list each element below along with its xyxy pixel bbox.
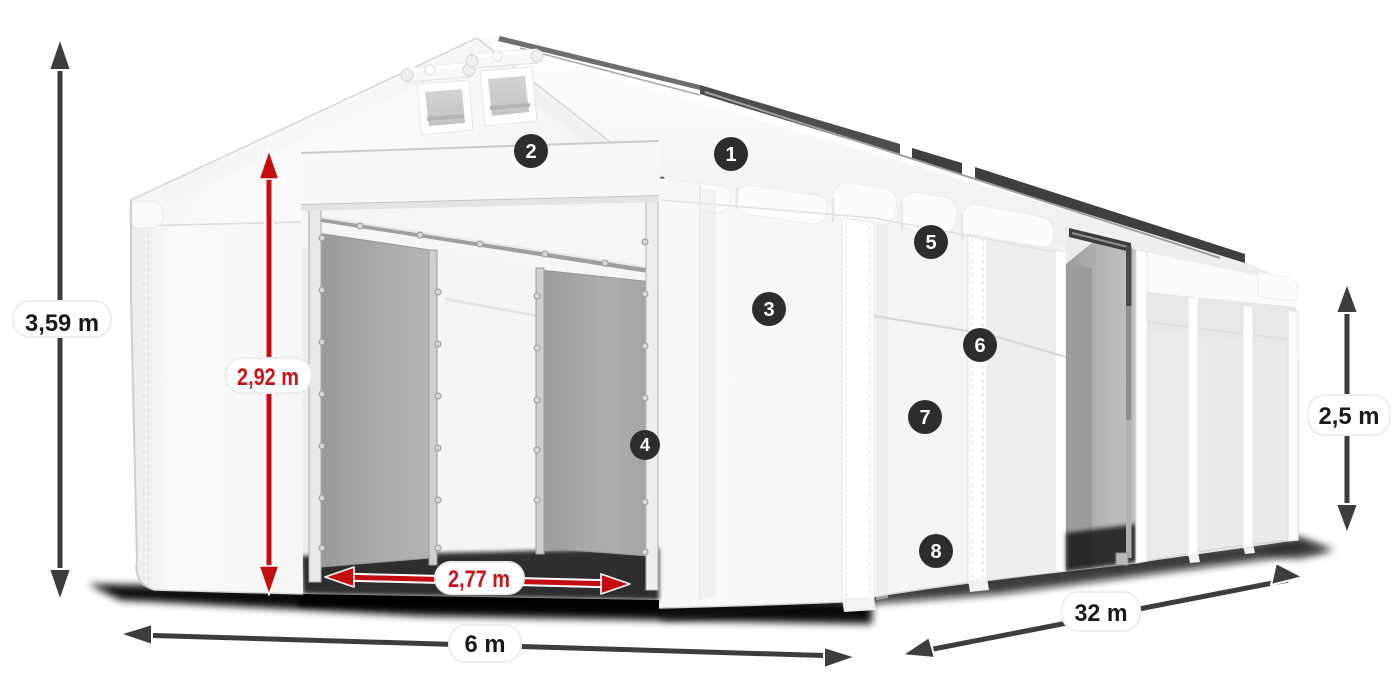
svg-text:32 m: 32 m	[1075, 600, 1128, 627]
svg-text:2,92 m: 2,92 m	[237, 364, 299, 391]
svg-text:2,5 m: 2,5 m	[1319, 403, 1380, 430]
svg-text:2,77 m: 2,77 m	[448, 566, 510, 593]
svg-text:3,59 m: 3,59 m	[25, 310, 99, 337]
svg-text:7: 7	[919, 407, 930, 429]
svg-text:1: 1	[725, 144, 736, 166]
svg-text:6: 6	[974, 335, 985, 357]
svg-text:4: 4	[640, 435, 650, 455]
svg-text:2: 2	[525, 141, 536, 163]
svg-text:8: 8	[930, 541, 941, 563]
svg-text:3: 3	[763, 299, 774, 321]
svg-text:6 m: 6 m	[465, 631, 506, 658]
svg-text:5: 5	[925, 232, 936, 254]
